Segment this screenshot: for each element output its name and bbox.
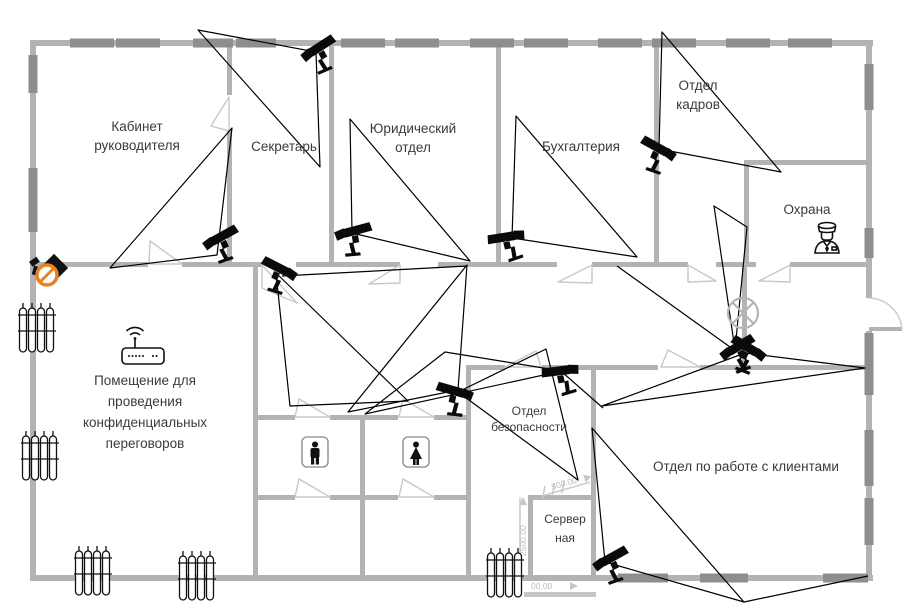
label-accounting: Бухгалтерия <box>542 139 620 154</box>
camera-fov-line <box>617 266 730 347</box>
cctv-camera-icon <box>538 353 589 404</box>
labels-layer: Кабинет руководителя Секретарь Юридическ… <box>83 78 839 545</box>
door-wc-male-inner <box>295 479 330 497</box>
cameras-layer <box>200 34 769 587</box>
label-secretary: Секретарь <box>251 139 317 154</box>
camera-fov-line <box>282 266 467 276</box>
door-accounting <box>558 265 592 283</box>
camera-fov-zone <box>276 273 408 406</box>
cctv-camera-icon <box>200 224 243 266</box>
label-legal-2: отдел <box>395 140 431 155</box>
door-director-secretary <box>211 97 229 131</box>
label-negotiations: Помещение для <box>94 373 196 388</box>
door-exit-east <box>869 298 902 329</box>
door-hr <box>688 265 716 282</box>
cctv-camera-icon <box>484 218 535 269</box>
door-director <box>149 241 182 264</box>
camera-fov-zone <box>602 353 865 406</box>
radiators-layer <box>18 303 524 600</box>
label-guard-post: Охрана <box>783 202 831 217</box>
cam-accounting-icon <box>484 218 535 269</box>
cam-legal-icon <box>332 219 374 260</box>
radiator-icon <box>18 303 56 352</box>
radiator-icon <box>74 546 112 595</box>
label-security: Отдел <box>512 404 547 418</box>
label-negotiations-2: проведения <box>108 394 182 409</box>
door-clients <box>661 350 700 367</box>
guard-icon <box>815 223 839 254</box>
label-server: Сервер <box>544 512 586 526</box>
wc-female-icon <box>403 437 429 467</box>
label-server-2: ная <box>555 531 575 545</box>
door-wc-female-inner <box>399 479 434 497</box>
label-security-2: безопасности <box>491 420 567 434</box>
cam-security-north-icon <box>538 353 589 404</box>
door-wc-male <box>295 399 330 417</box>
camera-fov-zone <box>512 116 637 257</box>
cam-director-icon <box>200 224 243 266</box>
dim-vertical: 2500.00 <box>518 525 528 556</box>
label-hr-2: кадров <box>676 97 720 112</box>
label-director: Кабинет <box>111 119 162 134</box>
wc-male-icon <box>302 437 328 467</box>
cctv-camera-icon <box>332 219 374 260</box>
door-legal <box>369 265 400 284</box>
label-clients: Отдел по работе с клиентами <box>653 459 839 474</box>
label-negotiations-3: конфиденциальных <box>83 415 207 430</box>
door-guard <box>759 265 790 282</box>
label-legal: Юридический <box>370 121 456 136</box>
radiator-icon <box>486 548 524 597</box>
dim-horizontal: 00.00 <box>531 581 553 591</box>
radiator-icon <box>21 431 59 480</box>
label-director-2: руководителя <box>94 138 180 153</box>
label-negotiations-4: переговоров <box>106 436 185 451</box>
floor-plan-page: 2500.00 00.00 500.00 <box>0 0 915 616</box>
dim-server-top: 500.00 <box>539 471 594 499</box>
dim-arrow-right <box>570 582 578 590</box>
radiator-icon <box>178 551 216 600</box>
wifi-router-icon <box>122 327 164 364</box>
floor-plan-svg: 2500.00 00.00 500.00 <box>0 0 915 616</box>
label-hr: Отдел <box>678 78 717 93</box>
doors-layer <box>149 97 902 497</box>
